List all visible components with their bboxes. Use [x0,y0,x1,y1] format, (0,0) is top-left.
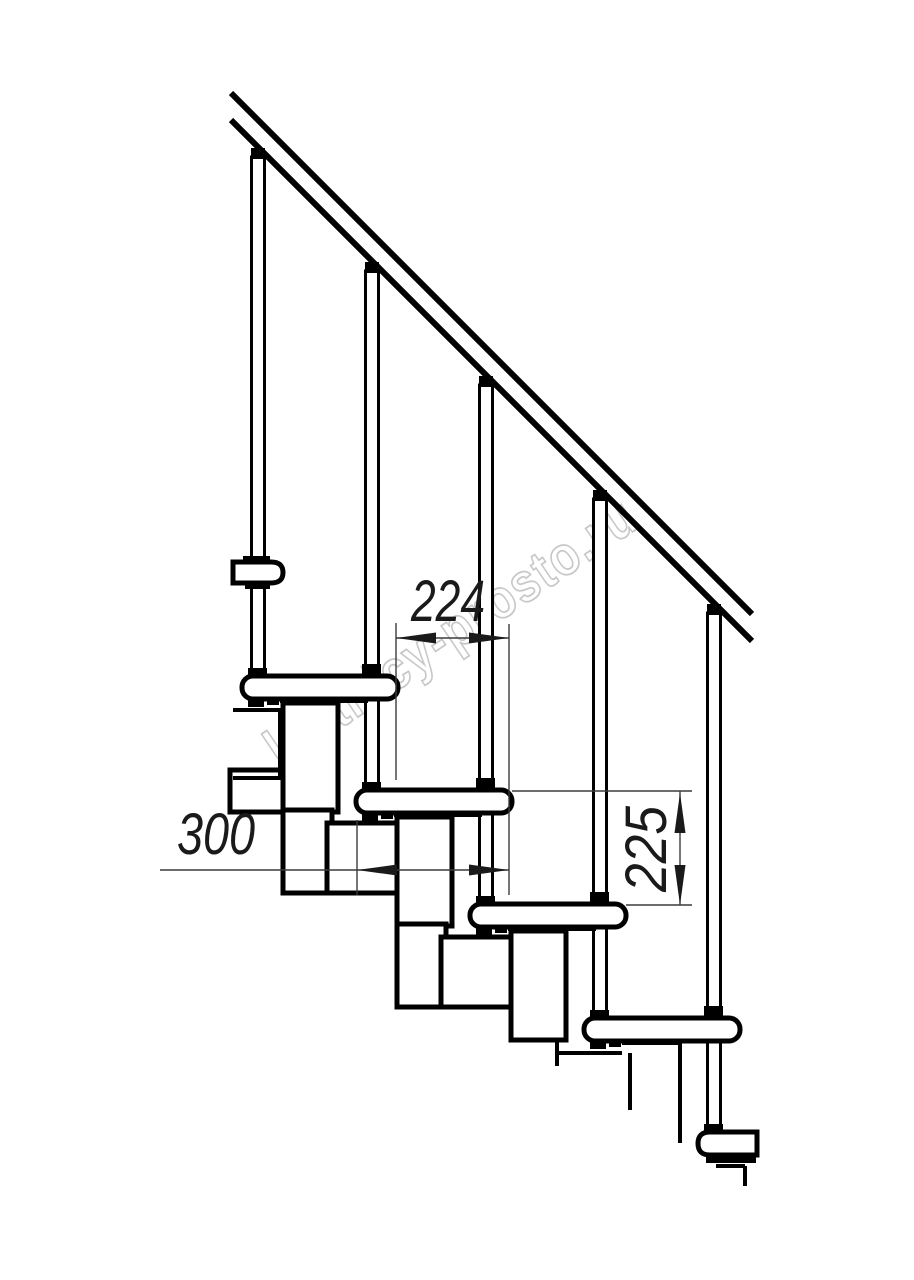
dimension-224-label: 224 [410,569,485,634]
baluster-4 [594,499,607,1018]
collar-endview-top [243,556,270,564]
clamp-baluster2-tread1 [362,664,381,676]
tread-2 [356,790,512,813]
baluster-5 [708,613,721,1132]
clamp-baluster5-tread4 [704,1006,723,1018]
collar-baluster1-tread1 [248,668,267,676]
clamp-baluster4-tread3 [590,892,609,904]
module-2b [397,817,452,926]
module-3b [511,931,566,1040]
under-tread-5 [706,1154,756,1163]
collar-baluster2-tread2 [362,782,381,790]
collar-baluster5-tread5 [704,1124,723,1132]
tread-1 [242,676,398,699]
baluster-1 [252,157,265,676]
tread-5-partial [698,1132,757,1155]
collar-endview-bottom [245,583,270,589]
tread-0-end-view [233,562,283,583]
module-2a [327,823,405,893]
baluster-2 [366,271,379,790]
tread-3 [470,904,626,927]
staircase-technical-drawing: lestnicy-prosto.ru [0,0,914,1280]
tread-4 [584,1018,740,1041]
clamp-baluster3-tread2 [476,778,495,790]
module-1a [283,703,338,812]
collar-baluster4-tread4 [590,1010,609,1018]
dimension-300-label: 300 [177,802,255,867]
collar-baluster3-tread3 [476,896,495,904]
fittings [243,148,756,1163]
dimension-225-label: 225 [614,805,679,893]
module-3a [441,937,519,1007]
baluster-3 [480,385,493,904]
under-tread-4 [590,1040,680,1049]
